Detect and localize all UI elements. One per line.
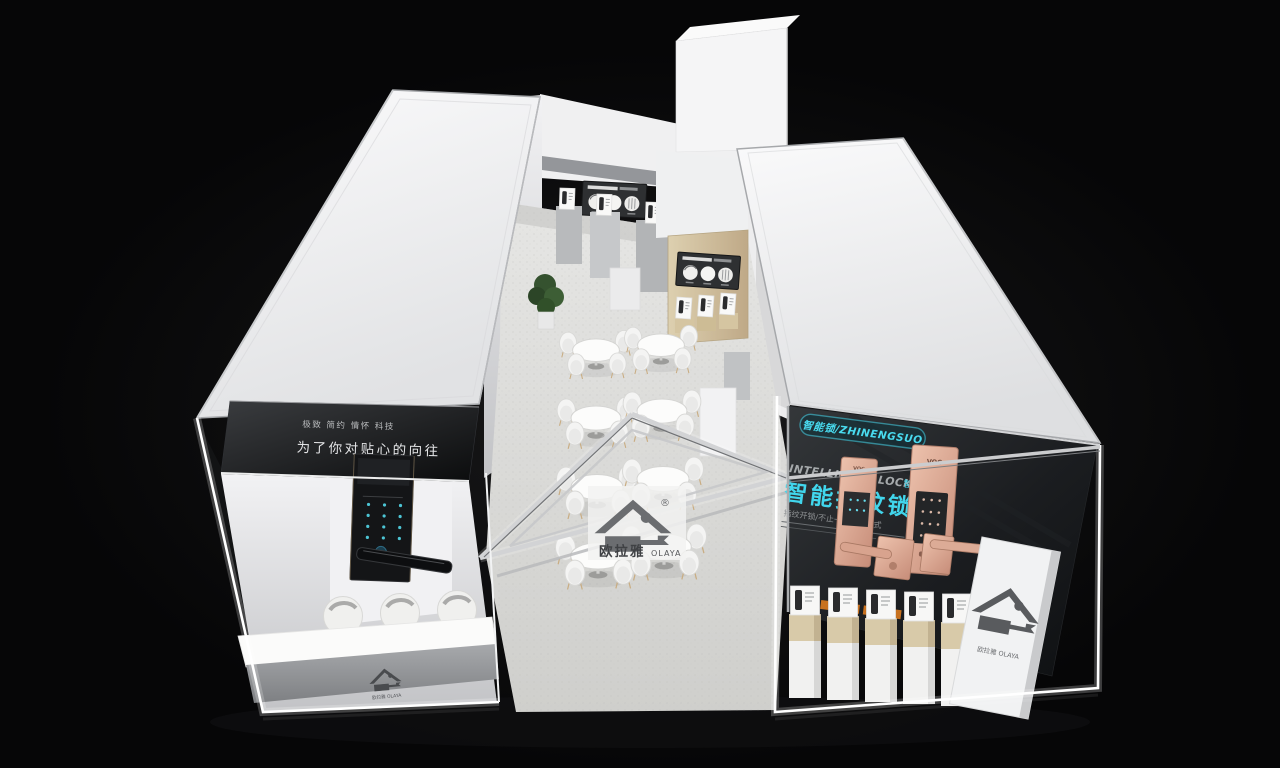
- registered-mark: ®: [660, 498, 670, 509]
- product-pedestal: [865, 590, 897, 702]
- product-pedestal: [789, 586, 821, 698]
- portal-brand-en: OLAYA: [651, 549, 682, 558]
- portal-brand-cn: 欧拉雅: [599, 543, 646, 560]
- white-column: [676, 15, 800, 152]
- wood-alcove: [656, 150, 748, 344]
- alcove-signboard: [676, 252, 741, 290]
- product-pedestal: [903, 592, 935, 704]
- product-pedestals: [789, 586, 973, 706]
- portal-brand: ® 欧拉雅 OLAYA: [588, 486, 686, 560]
- product-pedestal: [827, 588, 859, 700]
- booth-render: ® 欧拉雅 OLAYA 极致 简约 情怀 科技 为了你对贴心的向往: [0, 0, 1280, 768]
